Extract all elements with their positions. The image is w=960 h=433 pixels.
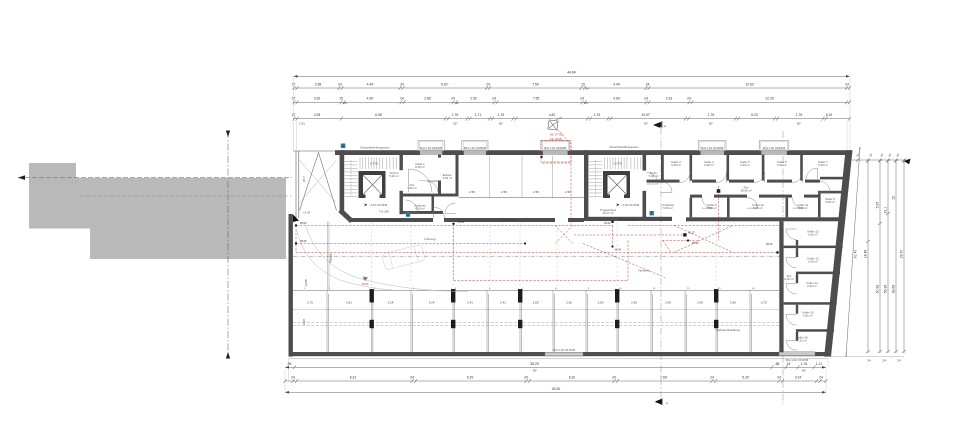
svg-text:5.06 m²: 5.06 m² xyxy=(753,206,763,210)
svg-text:B/H 1.40 OK/RFB: B/H 1.40 OK/RFB xyxy=(420,146,442,150)
svg-text:B/H 1.40 OK/RFB: B/H 1.40 OK/RFB xyxy=(763,146,785,150)
svg-text:KG 176.81: KG 176.81 xyxy=(550,137,563,141)
svg-text:38.29´: 38.29´ xyxy=(530,362,540,366)
svg-text:3.14´: 3.14´ xyxy=(388,301,395,305)
svg-text:6 STG: 6 STG xyxy=(614,162,622,166)
svg-text:42°: 42° xyxy=(797,122,801,126)
svg-text:24: 24 xyxy=(291,376,295,380)
svg-text:6.20 m²: 6.20 m² xyxy=(807,284,817,288)
svg-text:B/H 1.40 OK/RFB: B/H 1.40 OK/RFB xyxy=(464,146,486,150)
svg-text:14.08: 14.08 xyxy=(304,279,308,287)
svg-text:4.60´: 4.60´ xyxy=(613,97,621,101)
svg-text:24: 24 xyxy=(646,82,650,86)
svg-text:-2.45 OK RFB: -2.45 OK RFB xyxy=(622,203,640,207)
svg-text:24: 24 xyxy=(777,376,781,380)
svg-text:05.06: 05.06 xyxy=(604,221,611,225)
svg-text:24: 24 xyxy=(524,376,528,380)
svg-text:B/H 1.40 OK/RFB: B/H 1.40 OK/RFB xyxy=(701,146,723,150)
svg-text:B/H 1.40 OK RFB: B/H 1.40 OK RFB xyxy=(553,348,575,352)
svg-text:2.51: 2.51 xyxy=(299,122,305,126)
svg-text:Rampe: Rampe xyxy=(329,253,333,263)
svg-text:7.06 m²: 7.06 m² xyxy=(407,186,417,190)
svg-text:24: 24 xyxy=(644,97,648,101)
svg-text:6.30 m²: 6.30 m² xyxy=(818,163,828,167)
svg-text:18.55 m²: 18.55 m² xyxy=(740,189,751,193)
svg-text:17´: 17´ xyxy=(292,97,297,101)
svg-text:6.58´: 6.58´ xyxy=(375,113,383,117)
svg-text:3.14´: 3.14´ xyxy=(429,301,436,305)
svg-text:6.30 m²: 6.30 m² xyxy=(704,163,714,167)
svg-text:24: 24 xyxy=(492,97,496,101)
svg-text:05.06: 05.06 xyxy=(300,239,307,243)
svg-text:29: 29 xyxy=(584,101,588,105)
svg-text:5.06 m²: 5.06 m² xyxy=(663,206,673,210)
svg-text:05.13: 05.13 xyxy=(688,231,695,235)
svg-text:05.06: 05.06 xyxy=(300,221,307,225)
svg-text:5.20´: 5.20´ xyxy=(742,376,750,380)
svg-text:59.95: 59.95 xyxy=(884,285,888,294)
svg-text:Tür 286: Tür 286 xyxy=(379,210,389,214)
svg-text:2.50´: 2.50´ xyxy=(533,301,540,305)
svg-text:2.50: 2.50 xyxy=(501,190,507,194)
svg-text:74.74: 74.74 xyxy=(853,250,858,259)
svg-text:5.19: 5.19 xyxy=(826,113,833,117)
svg-text:24: 24 xyxy=(845,82,849,86)
svg-text:24: 24 xyxy=(486,82,490,86)
svg-text:42°: 42° xyxy=(709,122,713,126)
svg-text:41.1: 41.1 xyxy=(884,207,888,214)
svg-text:24´: 24´ xyxy=(787,362,792,366)
svg-text:2.98: 2.98 xyxy=(302,319,306,325)
svg-text:05.13: 05.13 xyxy=(692,241,699,245)
svg-text:6.21 m²: 6.21 m² xyxy=(797,339,807,343)
svg-text:Beton Brandwand: Beton Brandwand xyxy=(619,218,637,221)
svg-text:.96: .96 xyxy=(287,362,292,366)
svg-text:6.45 m²: 6.45 m² xyxy=(671,163,681,167)
svg-text:24: 24 xyxy=(338,82,342,86)
svg-text:12.33´: 12.33´ xyxy=(765,97,775,101)
svg-text:24: 24 xyxy=(897,358,901,362)
svg-text:05.06: 05.06 xyxy=(766,242,773,246)
svg-text:5.06 m²: 5.06 m² xyxy=(707,206,717,210)
svg-text:17´: 17´ xyxy=(292,113,297,117)
svg-text:62°: 62° xyxy=(499,122,503,126)
svg-text:+2.42: +2.42 xyxy=(303,211,311,215)
svg-text:9.46 m²: 9.46 m² xyxy=(784,277,794,281)
svg-text:2.50: 2.50 xyxy=(469,190,475,194)
svg-text:6.31: 6.31 xyxy=(350,376,357,380)
svg-text:60.93: 60.93 xyxy=(876,285,880,294)
svg-text:Schachtbelüftungsraum: Schachtbelüftungsraum xyxy=(360,145,390,149)
svg-text:12: 12 xyxy=(455,101,459,105)
svg-text:2.90: 2.90 xyxy=(697,301,703,305)
svg-text:10.67´: 10.67´ xyxy=(641,113,651,117)
svg-text:4.60´: 4.60´ xyxy=(367,97,375,101)
svg-text:E: E xyxy=(651,212,653,216)
svg-text:Fahrweg: Fahrweg xyxy=(425,237,436,241)
svg-text:6.30 m²: 6.30 m² xyxy=(777,163,787,167)
svg-text:24: 24 xyxy=(710,376,714,380)
svg-text:24: 24 xyxy=(343,101,347,105)
svg-text:29.70: 29.70 xyxy=(900,250,904,259)
svg-text:15: 15 xyxy=(892,196,896,200)
svg-text:3.28: 3.28 xyxy=(314,113,321,117)
svg-text:-2.45 OK RFB: -2.45 OK RFB xyxy=(370,203,388,207)
svg-text:1.76: 1.76 xyxy=(801,362,808,366)
svg-text:2.50: 2.50 xyxy=(533,190,539,194)
svg-text:43.20: 43.20 xyxy=(552,387,561,391)
svg-text:24: 24 xyxy=(400,82,404,86)
svg-text:5.20 m²: 5.20 m² xyxy=(389,174,399,178)
svg-text:5.06 m²: 5.06 m² xyxy=(649,174,659,178)
svg-text:24: 24 xyxy=(585,87,589,91)
svg-text:2.52: 2.52 xyxy=(470,97,477,101)
svg-text:6.20 m²: 6.20 m² xyxy=(808,260,818,264)
svg-text:5.97: 5.97 xyxy=(876,202,880,209)
svg-text:2.50´: 2.50´ xyxy=(598,301,605,305)
svg-text:05.06: 05.06 xyxy=(615,248,622,252)
svg-text:Parkraumbelüftung: Parkraumbelüftung xyxy=(716,328,740,332)
svg-text:1.11: 1.11 xyxy=(816,362,822,366)
svg-text:7.66´: 7.66´ xyxy=(660,376,668,380)
svg-text:2.41: 2.41 xyxy=(467,301,473,305)
svg-text:24: 24 xyxy=(612,376,616,380)
svg-text:24: 24 xyxy=(687,97,691,101)
svg-text:.88: .88 xyxy=(775,362,780,366)
svg-text:4.06 m²: 4.06 m² xyxy=(825,200,835,204)
svg-text:24: 24 xyxy=(867,358,871,362)
svg-text:3.26: 3.26 xyxy=(314,97,321,101)
svg-text:17´: 17´ xyxy=(292,82,297,86)
svg-text:10.62´: 10.62´ xyxy=(745,82,755,86)
svg-text:6 STG: 6 STG xyxy=(370,162,378,166)
svg-text:42°: 42° xyxy=(533,369,537,373)
svg-text:2.90: 2.90 xyxy=(631,301,637,305)
svg-text:1.76: 1.76 xyxy=(594,113,601,117)
svg-text:24: 24 xyxy=(400,97,404,101)
svg-text:05.06: 05.06 xyxy=(458,220,465,224)
svg-text:42°: 42° xyxy=(802,369,806,373)
svg-text:5.30 m²: 5.30 m² xyxy=(443,176,453,180)
svg-text:6.32: 6.32 xyxy=(569,376,576,380)
svg-text:2.41: 2.41 xyxy=(500,301,506,305)
svg-text:2.33: 2.33 xyxy=(666,97,673,101)
svg-text:4.82: 4.82 xyxy=(549,113,556,117)
svg-text:14.46: 14.46 xyxy=(864,250,868,259)
svg-text:24: 24 xyxy=(819,376,823,380)
svg-text:3.24: 3.24 xyxy=(795,376,802,380)
svg-text:46.27 m²: 46.27 m² xyxy=(602,211,613,215)
svg-text:28 P: 28 P xyxy=(302,176,306,182)
svg-text:24: 24 xyxy=(882,358,886,362)
svg-text:62°: 62° xyxy=(453,122,457,126)
svg-text:1.76: 1.76 xyxy=(708,113,715,117)
svg-text:44.04´: 44.04´ xyxy=(567,70,577,74)
svg-text:Beton Brandwand: Beton Brandwand xyxy=(382,219,400,222)
svg-text:B/H 1.40 OK/RFB: B/H 1.40 OK/RFB xyxy=(544,146,566,150)
svg-text:6.29: 6.29 xyxy=(467,376,474,380)
svg-text:3.38: 3.38 xyxy=(315,82,322,86)
svg-text:4.40´: 4.40´ xyxy=(613,82,621,86)
svg-text:2.90: 2.90 xyxy=(665,301,671,305)
svg-text:2.70: 2.70 xyxy=(307,301,313,305)
svg-text:63.69: 63.69 xyxy=(892,285,896,294)
svg-text:6.61 m²: 6.61 m² xyxy=(803,314,813,318)
svg-text:2.70´: 2.70´ xyxy=(761,301,768,305)
svg-text:24: 24 xyxy=(410,376,414,380)
svg-text:1.76: 1.76 xyxy=(796,113,803,117)
svg-text:5.20´: 5.20´ xyxy=(751,113,759,117)
svg-text:E: E xyxy=(407,213,409,217)
svg-text:6.20 m²: 6.20 m² xyxy=(808,233,818,237)
svg-text:8.26 m²: 8.26 m² xyxy=(415,165,425,169)
svg-text:1.76: 1.76 xyxy=(452,113,459,117)
svg-text:2.66: 2.66 xyxy=(730,301,736,305)
svg-text:05.06: 05.06 xyxy=(362,282,369,286)
svg-text:5.06 m²: 5.06 m² xyxy=(798,206,808,210)
svg-text:7.50: 7.50 xyxy=(532,82,539,86)
svg-text:Beton Brandwand: Beton Brandwand xyxy=(501,219,519,222)
svg-text:4.10 m²: 4.10 m² xyxy=(415,207,425,211)
svg-text:2.86´: 2.86´ xyxy=(424,97,432,101)
svg-text:6.30 m²: 6.30 m² xyxy=(740,163,750,167)
svg-text:1.76: 1.76 xyxy=(498,113,505,117)
svg-text:42°: 42° xyxy=(644,122,648,126)
svg-text:3.61: 3.61 xyxy=(346,301,352,305)
svg-text:2.50: 2.50 xyxy=(565,190,571,194)
svg-text:E: E xyxy=(342,144,344,148)
svg-text:1.71: 1.71 xyxy=(475,113,482,117)
svg-text:4.40´: 4.40´ xyxy=(367,82,375,86)
svg-text:7.55: 7.55 xyxy=(533,97,540,101)
svg-text:6.62´: 6.62´ xyxy=(441,82,449,86)
svg-text:Schachtbelüftungsraum: Schachtbelüftungsraum xyxy=(609,145,639,149)
svg-text:2.50: 2.50 xyxy=(566,301,572,305)
